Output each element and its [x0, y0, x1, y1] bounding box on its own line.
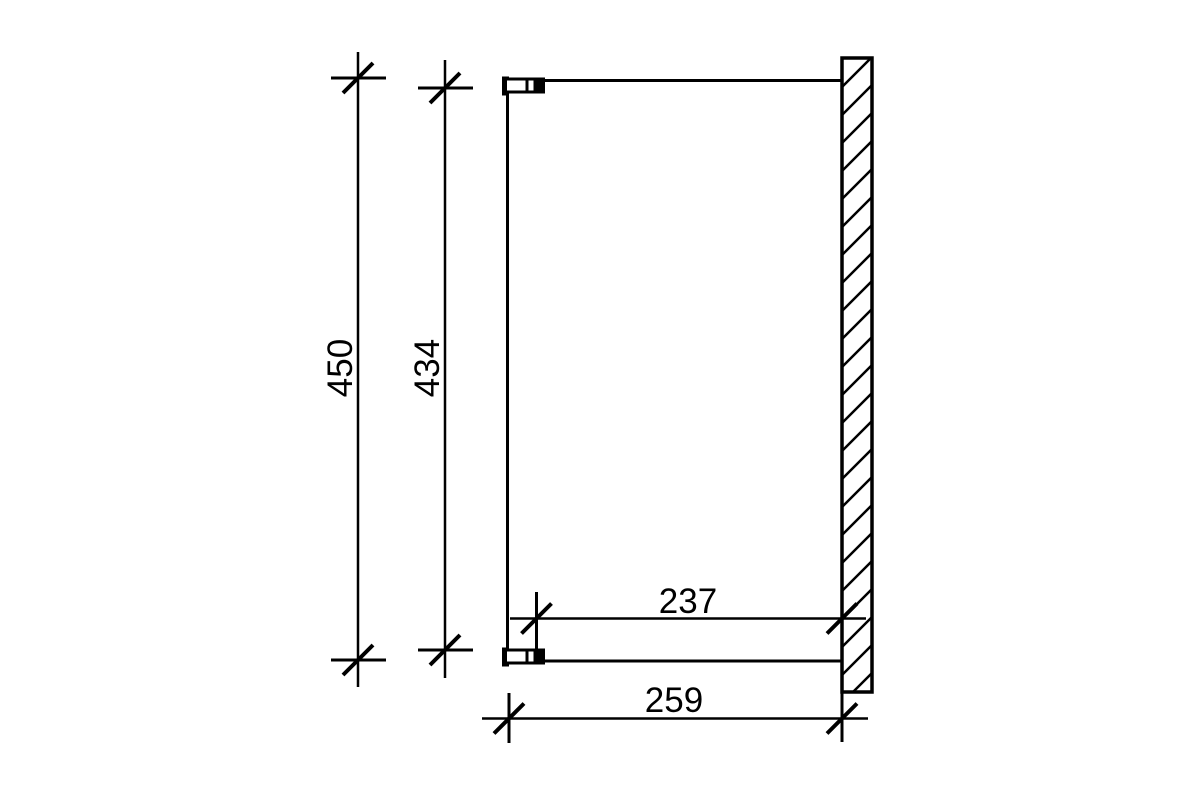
- beam-structure: [507, 81, 842, 662]
- wall: [842, 58, 872, 742]
- dimension-label-259: 259: [645, 681, 703, 720]
- technical-drawing-canvas: 450 434: [0, 0, 1200, 800]
- dimension-450: 450: [321, 52, 386, 687]
- dimension-434: 434: [408, 60, 473, 678]
- dimension-label-434: 434: [408, 339, 447, 397]
- technical-drawing: 450 434: [0, 0, 1200, 800]
- dimension-label-237: 237: [659, 582, 717, 621]
- top-connector: [502, 77, 544, 96]
- dimension-label-450: 450: [321, 339, 360, 397]
- wall-hatched-section: [842, 58, 872, 692]
- dimension-237: 237: [510, 582, 866, 649]
- connector-block: [534, 79, 544, 92]
- bottom-connector: [502, 648, 544, 667]
- dimension-259: 259: [482, 681, 868, 743]
- connector-block: [534, 650, 544, 663]
